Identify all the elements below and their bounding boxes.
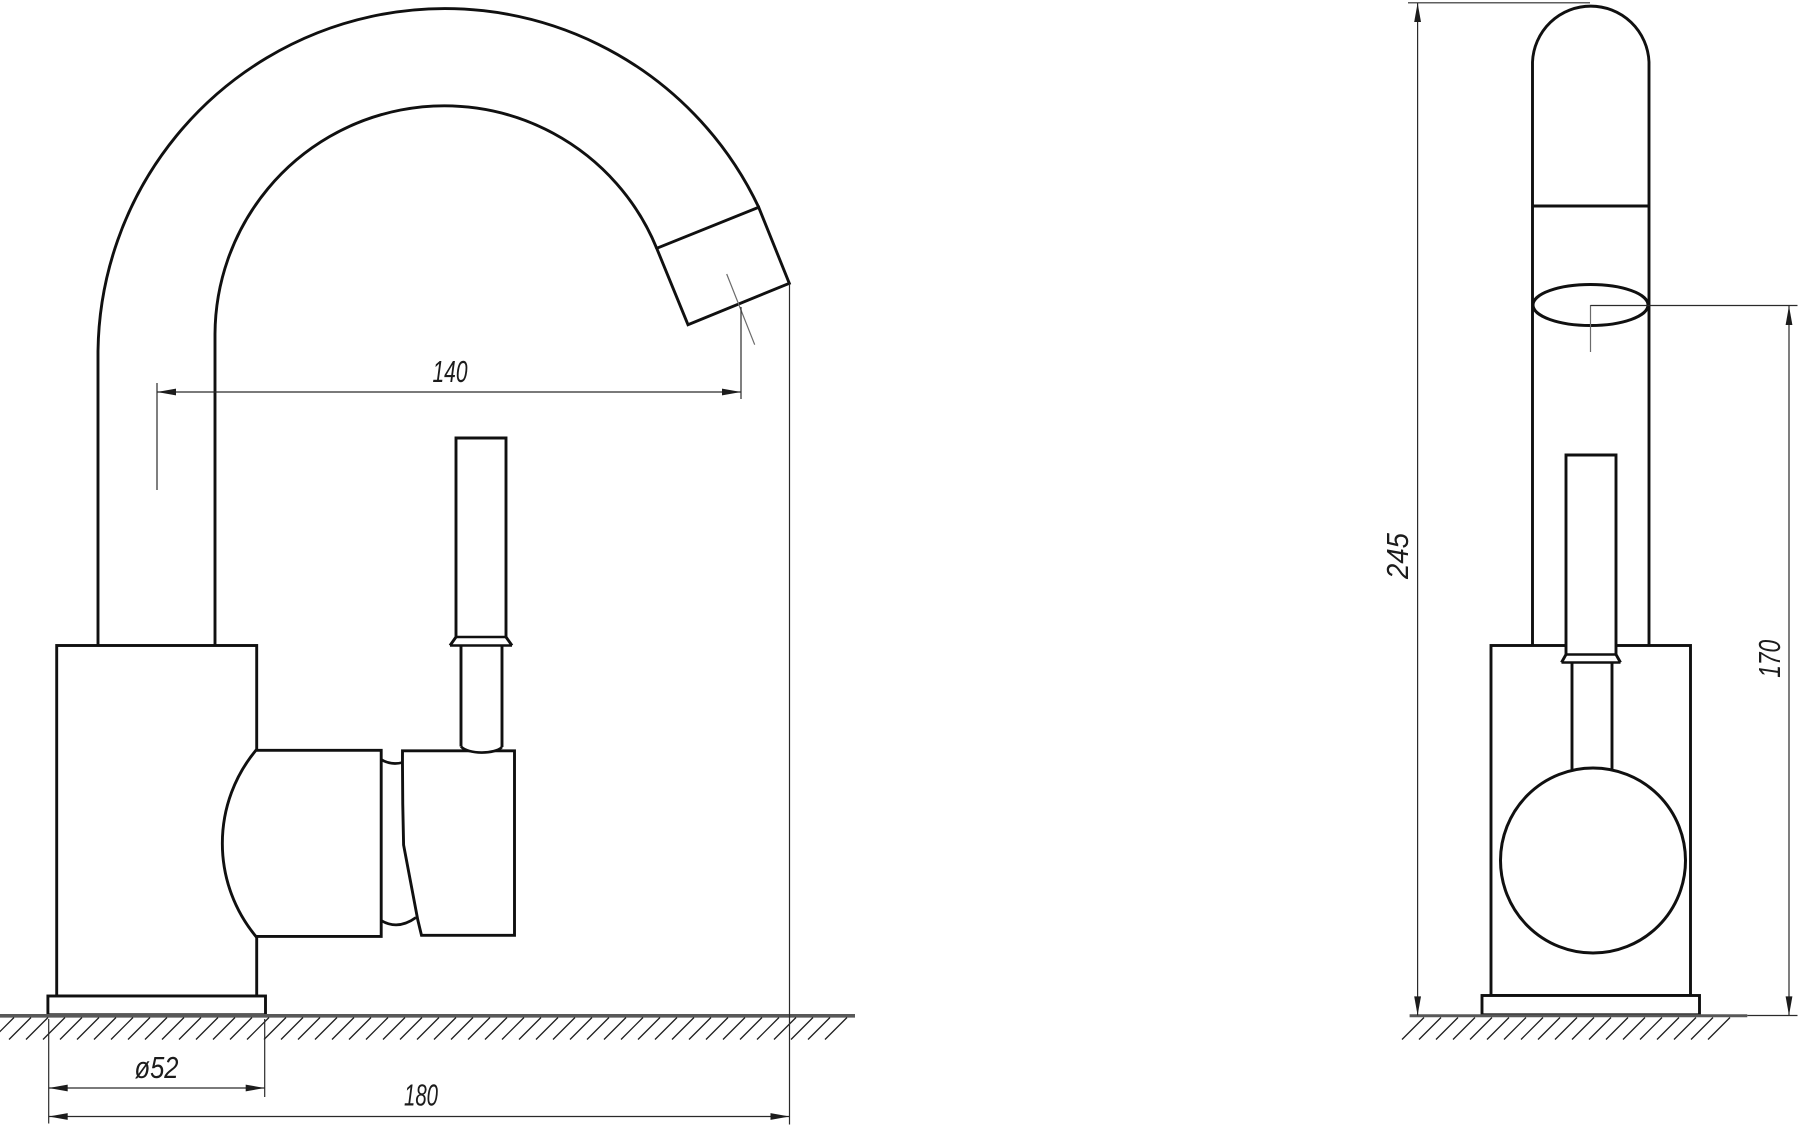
svg-text:140: 140 — [433, 354, 468, 389]
svg-text:170: 170 — [1752, 640, 1787, 678]
svg-text:ø52: ø52 — [135, 1050, 179, 1085]
svg-text:180: 180 — [404, 1078, 438, 1113]
svg-text:245: 245 — [1380, 532, 1415, 580]
